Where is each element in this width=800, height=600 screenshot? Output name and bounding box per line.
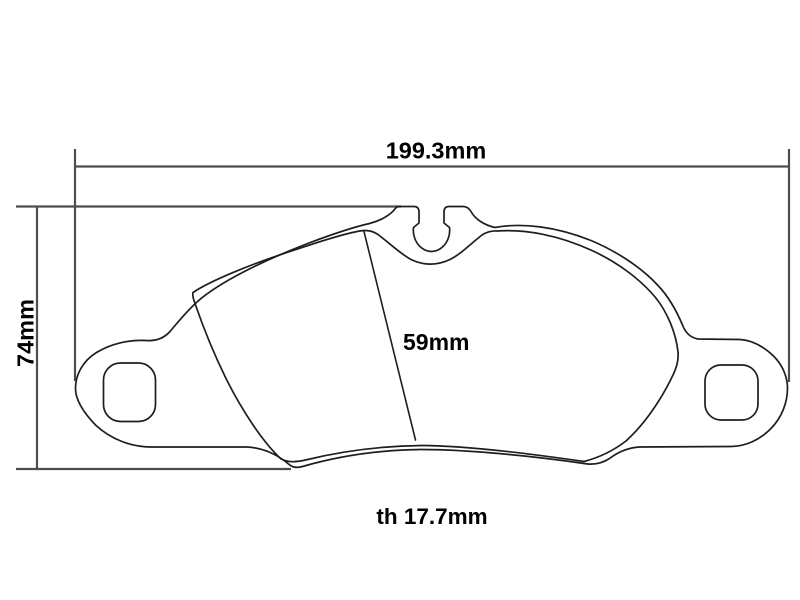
- drawing-page: 199.3mm 74mm 59mm th 17.7mm: [0, 0, 800, 600]
- width-dimension-label: 199.3mm: [386, 138, 487, 164]
- friction-height-label: 59mm: [403, 329, 469, 355]
- dimension-labels: 199.3mm 74mm 59mm th 17.7mm: [13, 138, 488, 530]
- right-mounting-hole: [705, 365, 758, 420]
- left-mounting-hole: [104, 363, 156, 422]
- height-dimension-label: 74mm: [13, 299, 39, 367]
- brake-pad-drawing: 199.3mm 74mm 59mm th 17.7mm: [0, 0, 800, 600]
- thickness-label: th 17.7mm: [376, 504, 487, 529]
